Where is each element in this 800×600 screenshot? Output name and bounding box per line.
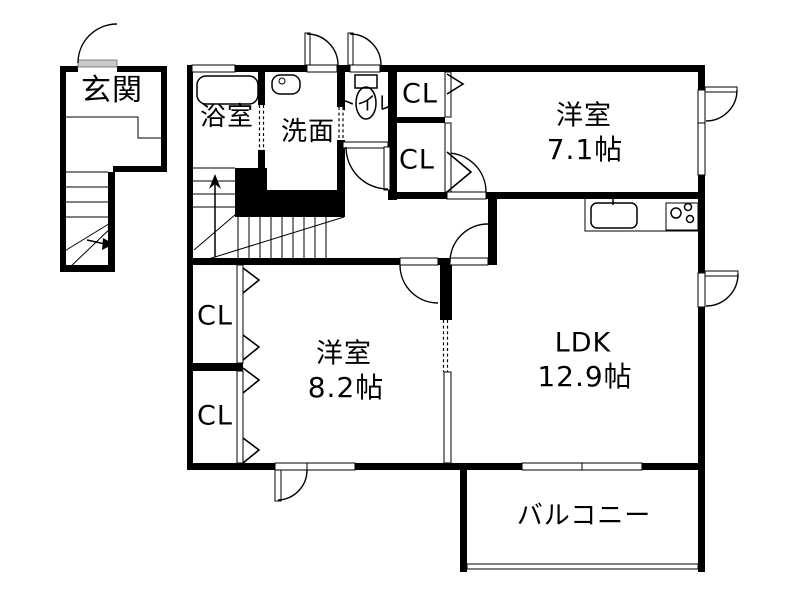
- room-label-closet-left-upper: CL: [197, 303, 233, 330]
- room-label-bedroom2: 洋室: [316, 341, 372, 368]
- bedroom2-window: [307, 463, 355, 470]
- ldk-door-leaf: [450, 258, 488, 265]
- room-label-closet-left-lower: CL: [197, 403, 233, 430]
- wall: [187, 463, 275, 470]
- fold-door-chevron: [243, 268, 259, 293]
- stove-burner: [671, 208, 681, 218]
- wall-mass: [265, 190, 345, 217]
- room-label-washroom: 洗面: [281, 119, 335, 145]
- wall: [698, 65, 705, 90]
- entrance-door-leaf: [78, 60, 117, 67]
- wall: [486, 192, 705, 199]
- bedroom2-exterior-door-leaf: [275, 470, 281, 501]
- washroom-casement-arc: [307, 34, 338, 65]
- wall: [440, 258, 452, 320]
- toilet-tank: [355, 75, 377, 88]
- wall: [60, 66, 78, 72]
- ldk-side-door-opening: [698, 273, 705, 307]
- wall: [187, 65, 193, 470]
- room-size-bedroom2: 8.2帖: [308, 374, 385, 402]
- wall: [60, 66, 66, 272]
- toilet-door-leaf: [384, 147, 390, 190]
- ldk-door-arc: [450, 224, 488, 262]
- entrance-stairs: [63, 172, 114, 270]
- sliding-partition: [444, 372, 451, 463]
- closet-front: [237, 265, 243, 363]
- toilet-door-arc: [346, 147, 388, 189]
- bedroom1-side-door-leaf: [705, 87, 737, 92]
- wall: [187, 258, 400, 265]
- fold-door-chevron: [243, 335, 259, 360]
- room-size-ldk: 12.9帖: [537, 363, 632, 391]
- bedroom1-side-window: [698, 123, 705, 175]
- wall: [161, 66, 167, 172]
- bedroom2-exterior-door-opening: [275, 463, 307, 470]
- wall: [397, 117, 445, 123]
- toilet-casement-leaf: [348, 33, 353, 65]
- ldk-side-door-leaf: [705, 271, 738, 276]
- bathtub: [197, 76, 258, 104]
- stove-burner: [685, 204, 692, 211]
- wall: [355, 463, 522, 470]
- wall: [258, 72, 265, 105]
- wall: [113, 166, 167, 172]
- wall: [698, 175, 705, 273]
- bathroom-window: [192, 65, 235, 72]
- fold-door-chevron: [243, 368, 259, 393]
- toilet-window-opening: [350, 65, 380, 72]
- entrance-structure: [60, 24, 167, 272]
- closet-front: [445, 72, 451, 117]
- wall-mass: [235, 168, 267, 217]
- room-label-toilet: トイレ: [337, 95, 397, 114]
- room-size-bedroom1: 7.1帖: [547, 136, 624, 164]
- washbasin-drain: [279, 78, 285, 84]
- bedroom1-side-door-arc: [706, 90, 737, 121]
- bedroom1-door-leaf: [447, 192, 486, 199]
- wall: [187, 363, 243, 371]
- toilet-door-opening: [343, 142, 388, 148]
- wall: [380, 65, 705, 72]
- floor-plan: 玄関 浴室 洗面 トイレ CL CL 洋室 7.1帖 CL CL 洋室 8.2帖…: [0, 0, 800, 600]
- balcony-railing: [467, 564, 698, 569]
- wall: [488, 258, 497, 265]
- room-label-closet-mid: CL: [399, 147, 435, 174]
- entrance-step-line: [65, 117, 161, 138]
- stair-break-line: [202, 217, 344, 261]
- stair-direction-arrow: [87, 240, 105, 244]
- closet-front: [445, 123, 451, 192]
- bedroom2-exterior-door-arc: [278, 470, 307, 500]
- wall: [235, 65, 307, 72]
- closet-front: [237, 371, 243, 463]
- wall: [698, 470, 705, 572]
- wall: [397, 192, 447, 199]
- wall: [117, 66, 167, 72]
- washroom-casement-leaf: [305, 33, 310, 65]
- room-label-bedroom1: 洋室: [556, 103, 612, 130]
- wall: [488, 198, 497, 258]
- stove-burner: [687, 216, 694, 223]
- entrance-door-arc: [78, 24, 117, 63]
- wall: [698, 307, 705, 470]
- room-label-balcony: バルコニー: [517, 503, 651, 529]
- wall: [258, 150, 265, 168]
- bedroom1-side-door-opening: [698, 90, 705, 123]
- washbasin: [272, 75, 300, 94]
- toilet-casement-arc: [350, 34, 381, 65]
- kitchen-sink: [591, 203, 637, 228]
- room-label-bathroom: 浴室: [200, 104, 254, 130]
- bedroom2-door-leaf: [400, 258, 438, 265]
- ldk-side-door-arc: [706, 274, 738, 306]
- wall: [460, 470, 467, 572]
- closet-doors: [237, 72, 471, 463]
- washroom-window-opening: [307, 65, 337, 72]
- room-label-ldk: LDK: [555, 330, 612, 357]
- room-label-closet-top: CL: [402, 81, 438, 108]
- bedroom2-door-arc: [400, 265, 438, 303]
- fold-door-chevron: [243, 438, 259, 463]
- wall: [642, 463, 705, 470]
- room-label-genkan: 玄関: [81, 76, 143, 106]
